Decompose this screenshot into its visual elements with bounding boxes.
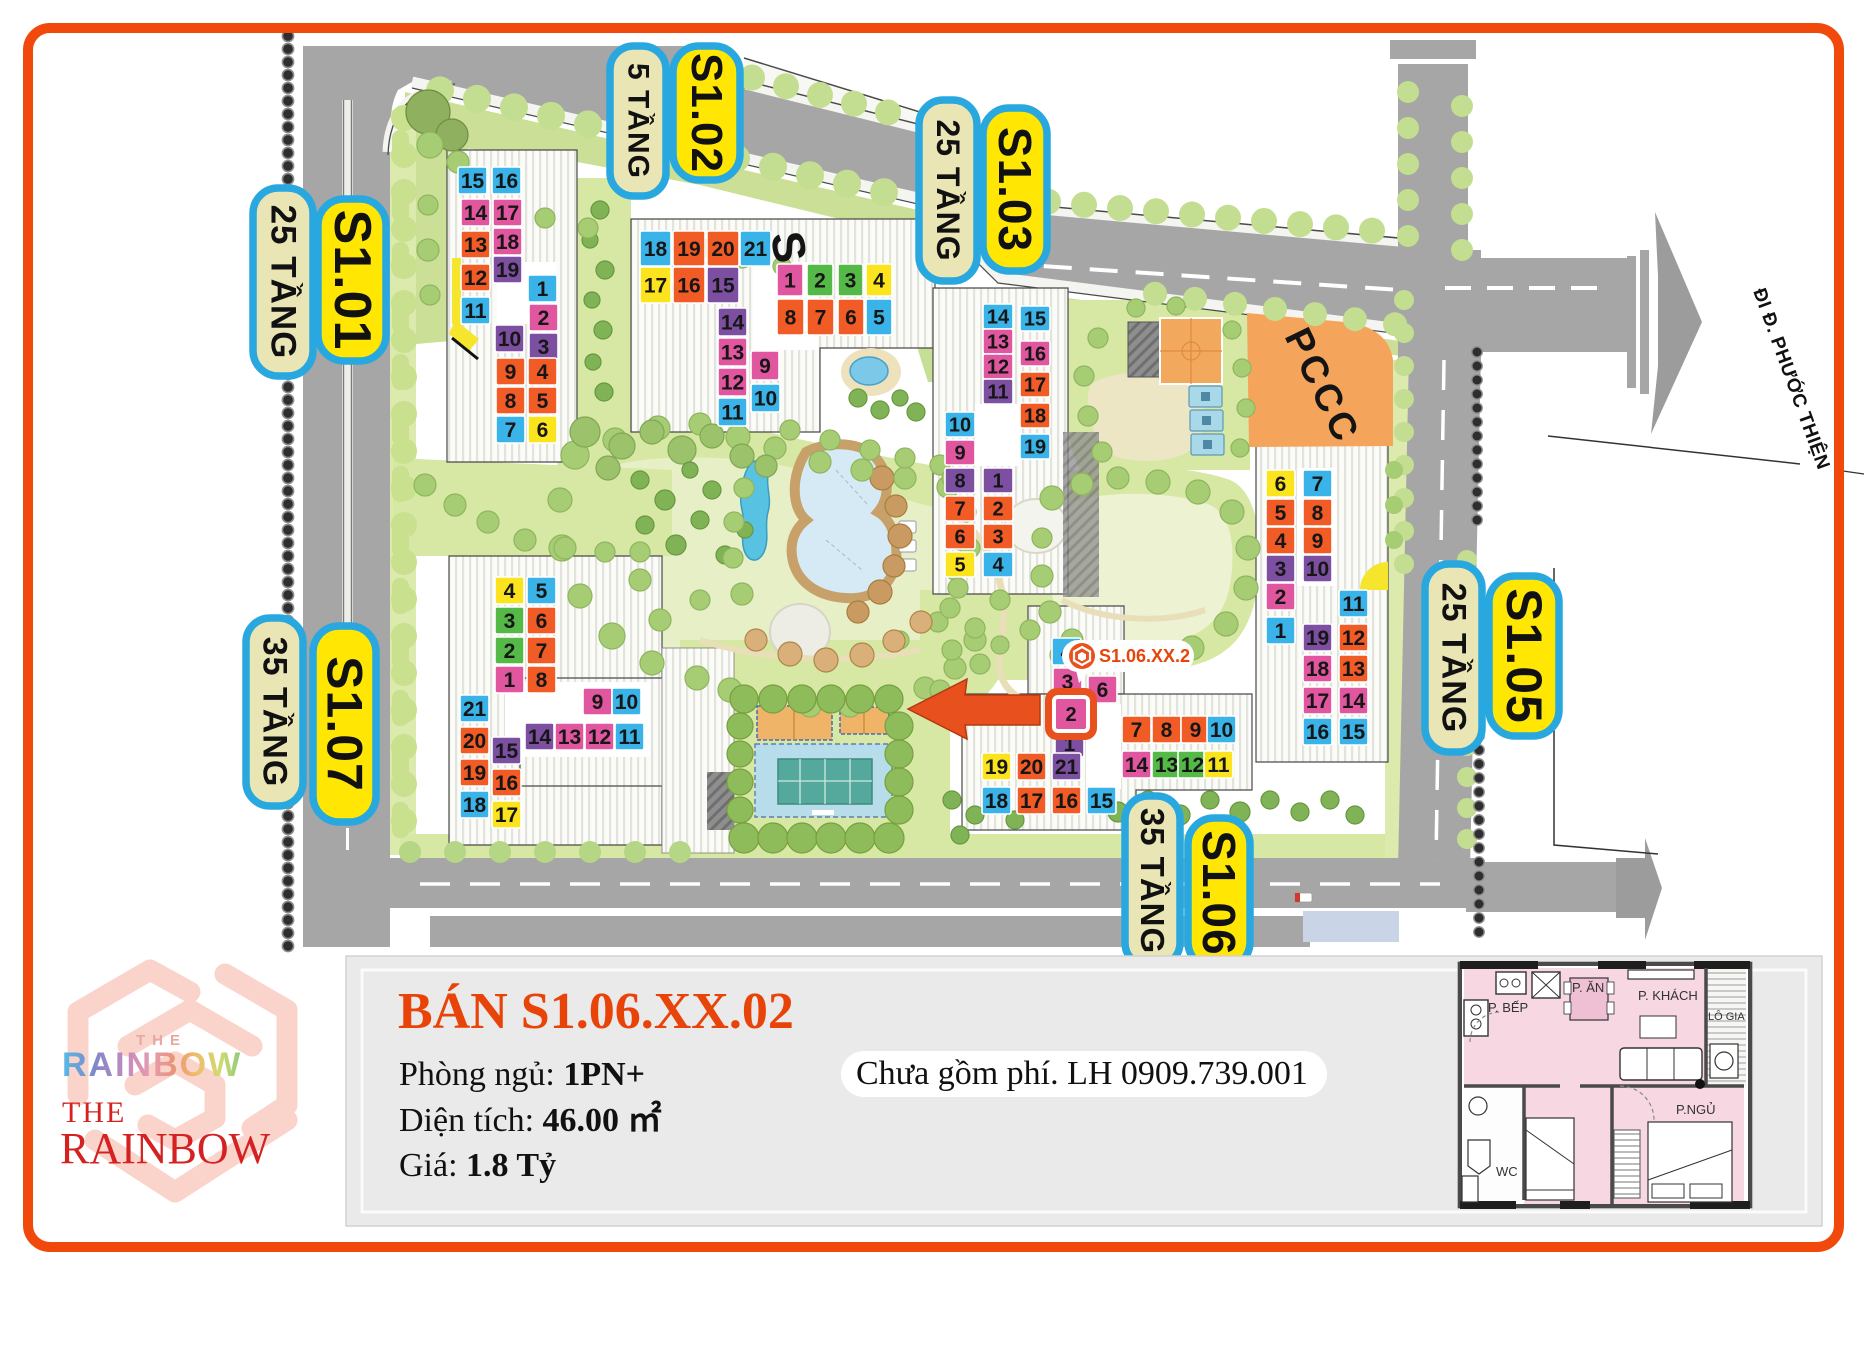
svg-text:13: 13 xyxy=(1155,754,1178,777)
svg-text:6: 6 xyxy=(845,307,857,330)
svg-text:12: 12 xyxy=(987,357,1009,379)
svg-text:16: 16 xyxy=(495,772,518,795)
svg-text:10: 10 xyxy=(754,388,777,411)
svg-text:20: 20 xyxy=(1020,756,1043,779)
svg-text:16: 16 xyxy=(495,170,518,193)
svg-text:25 TẦNG: 25 TẦNG xyxy=(1435,583,1473,734)
svg-text:21: 21 xyxy=(463,698,487,721)
svg-text:14: 14 xyxy=(1125,754,1149,777)
svg-text:13: 13 xyxy=(464,234,487,257)
svg-text:9: 9 xyxy=(1190,719,1202,742)
svg-text:RAINBOW: RAINBOW xyxy=(60,1124,271,1173)
svg-text:20: 20 xyxy=(463,730,486,753)
svg-text:2: 2 xyxy=(1275,586,1287,609)
svg-text:6: 6 xyxy=(954,527,965,549)
svg-text:RAINBOW: RAINBOW xyxy=(62,1046,242,1084)
svg-text:8: 8 xyxy=(505,390,517,413)
svg-text:10: 10 xyxy=(949,415,971,437)
svg-text:16: 16 xyxy=(1055,790,1078,813)
svg-text:5: 5 xyxy=(1275,502,1287,525)
svg-text:6: 6 xyxy=(536,610,548,633)
svg-text:17: 17 xyxy=(495,804,518,827)
svg-text:P. BẾP: P. BẾP xyxy=(1488,1000,1528,1015)
svg-text:1: 1 xyxy=(992,471,1003,493)
svg-text:15: 15 xyxy=(495,740,519,763)
svg-text:5: 5 xyxy=(954,555,965,577)
svg-text:10: 10 xyxy=(615,691,638,714)
svg-text:17: 17 xyxy=(1024,375,1046,397)
svg-text:Giá: 1.8 Tỷ: Giá: 1.8 Tỷ xyxy=(399,1147,556,1184)
svg-text:21: 21 xyxy=(1055,756,1079,779)
svg-text:7: 7 xyxy=(505,419,517,442)
svg-text:4: 4 xyxy=(537,361,549,384)
svg-text:S1.03: S1.03 xyxy=(989,127,1041,252)
svg-text:S1.07: S1.07 xyxy=(317,656,373,792)
svg-text:3: 3 xyxy=(538,336,550,359)
svg-text:10: 10 xyxy=(498,328,521,351)
svg-text:3: 3 xyxy=(1275,558,1287,581)
svg-text:25 TẦNG: 25 TẦNG xyxy=(264,205,304,360)
svg-text:2: 2 xyxy=(992,499,1003,521)
svg-text:11: 11 xyxy=(987,382,1008,404)
svg-text:6: 6 xyxy=(1097,679,1109,702)
svg-text:11: 11 xyxy=(464,300,487,323)
svg-text:P. ĂN: P. ĂN xyxy=(1572,980,1604,995)
svg-text:8: 8 xyxy=(785,307,797,330)
svg-text:BÁN S1.06.XX.02: BÁN S1.06.XX.02 xyxy=(398,982,794,1040)
svg-text:14: 14 xyxy=(987,307,1010,329)
svg-text:9: 9 xyxy=(1312,530,1324,553)
svg-text:4: 4 xyxy=(1275,530,1287,553)
svg-text:LÔ GIA: LÔ GIA xyxy=(1708,1010,1745,1023)
svg-text:1: 1 xyxy=(784,270,796,293)
svg-text:19: 19 xyxy=(985,756,1008,779)
svg-text:2: 2 xyxy=(814,270,826,293)
svg-text:2: 2 xyxy=(504,640,516,663)
svg-text:8: 8 xyxy=(1161,719,1173,742)
svg-text:18: 18 xyxy=(496,231,520,254)
svg-text:7: 7 xyxy=(536,640,548,663)
svg-text:1: 1 xyxy=(504,669,516,692)
svg-text:12: 12 xyxy=(464,267,487,290)
svg-text:7: 7 xyxy=(954,499,965,521)
svg-text:12: 12 xyxy=(1342,627,1365,650)
svg-text:3: 3 xyxy=(504,610,516,633)
svg-text:2: 2 xyxy=(538,307,550,330)
svg-text:19: 19 xyxy=(463,762,486,785)
svg-text:15: 15 xyxy=(1090,790,1114,813)
svg-text:12: 12 xyxy=(588,726,611,749)
svg-text:6: 6 xyxy=(1275,473,1287,496)
svg-text:17: 17 xyxy=(1306,690,1329,713)
svg-text:1: 1 xyxy=(537,278,549,301)
svg-text:17: 17 xyxy=(496,202,519,225)
svg-text:Chưa gồm phí. LH 0909.739.001: Chưa gồm phí. LH 0909.739.001 xyxy=(856,1055,1308,1092)
svg-text:13: 13 xyxy=(987,332,1009,354)
svg-text:10: 10 xyxy=(1306,558,1329,581)
svg-text:35 TẦNG: 35 TẦNG xyxy=(256,637,294,788)
svg-text:5: 5 xyxy=(873,307,885,330)
svg-text:13: 13 xyxy=(558,726,581,749)
svg-text:19: 19 xyxy=(1024,437,1046,459)
svg-text:7: 7 xyxy=(1131,719,1143,742)
svg-text:19: 19 xyxy=(677,238,700,261)
svg-text:8: 8 xyxy=(954,471,965,493)
svg-text:18: 18 xyxy=(985,790,1009,813)
svg-text:15: 15 xyxy=(1024,309,1046,331)
svg-text:P.NGỦ: P.NGỦ xyxy=(1676,1102,1716,1117)
svg-text:14: 14 xyxy=(1342,690,1366,713)
svg-text:11: 11 xyxy=(618,726,641,749)
svg-text:P. KHÁCH: P. KHÁCH xyxy=(1638,988,1698,1003)
svg-text:WC: WC xyxy=(1496,1164,1518,1179)
svg-text:9: 9 xyxy=(954,443,965,465)
svg-text:Phòng ngủ: 1PN+: Phòng ngủ: 1PN+ xyxy=(399,1056,645,1093)
svg-text:5: 5 xyxy=(536,580,548,603)
svg-text:5 TẦNG: 5 TẦNG xyxy=(622,63,656,179)
svg-text:15: 15 xyxy=(1342,721,1366,744)
svg-text:11: 11 xyxy=(1207,754,1230,777)
svg-text:11: 11 xyxy=(721,402,744,425)
svg-text:2: 2 xyxy=(1065,704,1076,726)
svg-text:18: 18 xyxy=(1306,658,1330,681)
svg-text:3: 3 xyxy=(845,270,857,293)
svg-text:14: 14 xyxy=(721,312,745,335)
svg-text:18: 18 xyxy=(1024,406,1046,428)
svg-text:16: 16 xyxy=(1024,344,1046,366)
svg-text:S1.06.XX.2: S1.06.XX.2 xyxy=(1099,646,1190,666)
svg-text:18: 18 xyxy=(644,238,668,261)
svg-text:5: 5 xyxy=(537,390,549,413)
svg-text:1: 1 xyxy=(1275,620,1287,643)
svg-text:9: 9 xyxy=(592,691,604,714)
svg-text:10: 10 xyxy=(1210,719,1233,742)
svg-text:17: 17 xyxy=(644,275,667,298)
svg-text:3: 3 xyxy=(992,527,1003,549)
svg-text:S1.05: S1.05 xyxy=(1496,588,1552,724)
svg-text:14: 14 xyxy=(464,202,488,225)
svg-text:S1.01: S1.01 xyxy=(323,210,381,351)
svg-text:Diện tích: 46.00 ㎡: Diện tích: 46.00 ㎡ xyxy=(399,1100,662,1139)
svg-text:8: 8 xyxy=(1312,502,1324,525)
svg-text:25 TẦNG: 25 TẦNG xyxy=(930,119,966,261)
svg-text:4: 4 xyxy=(992,555,1004,577)
svg-text:15: 15 xyxy=(711,275,735,298)
svg-text:14: 14 xyxy=(528,726,552,749)
svg-text:18: 18 xyxy=(463,794,487,817)
svg-text:9: 9 xyxy=(759,355,771,378)
svg-text:16: 16 xyxy=(1306,721,1329,744)
svg-text:4: 4 xyxy=(873,270,885,293)
svg-text:S1.06: S1.06 xyxy=(1193,830,1245,955)
svg-text:12: 12 xyxy=(1181,754,1204,777)
svg-text:S1.02: S1.02 xyxy=(682,53,731,173)
svg-text:7: 7 xyxy=(1312,473,1324,496)
svg-text:12: 12 xyxy=(721,372,744,395)
svg-text:6: 6 xyxy=(537,419,549,442)
svg-text:17: 17 xyxy=(1020,790,1043,813)
svg-text:9: 9 xyxy=(505,361,517,384)
svg-text:16: 16 xyxy=(677,275,700,298)
svg-text:7: 7 xyxy=(815,307,827,330)
svg-text:35 TẦNG: 35 TẦNG xyxy=(1134,808,1171,954)
svg-text:20: 20 xyxy=(711,238,734,261)
svg-text:19: 19 xyxy=(1306,627,1329,650)
svg-text:11: 11 xyxy=(1342,593,1365,616)
svg-text:13: 13 xyxy=(1342,658,1365,681)
svg-text:19: 19 xyxy=(496,259,519,282)
svg-text:8: 8 xyxy=(536,669,548,692)
svg-text:13: 13 xyxy=(721,342,744,365)
svg-text:4: 4 xyxy=(504,580,516,603)
svg-text:15: 15 xyxy=(461,170,485,193)
